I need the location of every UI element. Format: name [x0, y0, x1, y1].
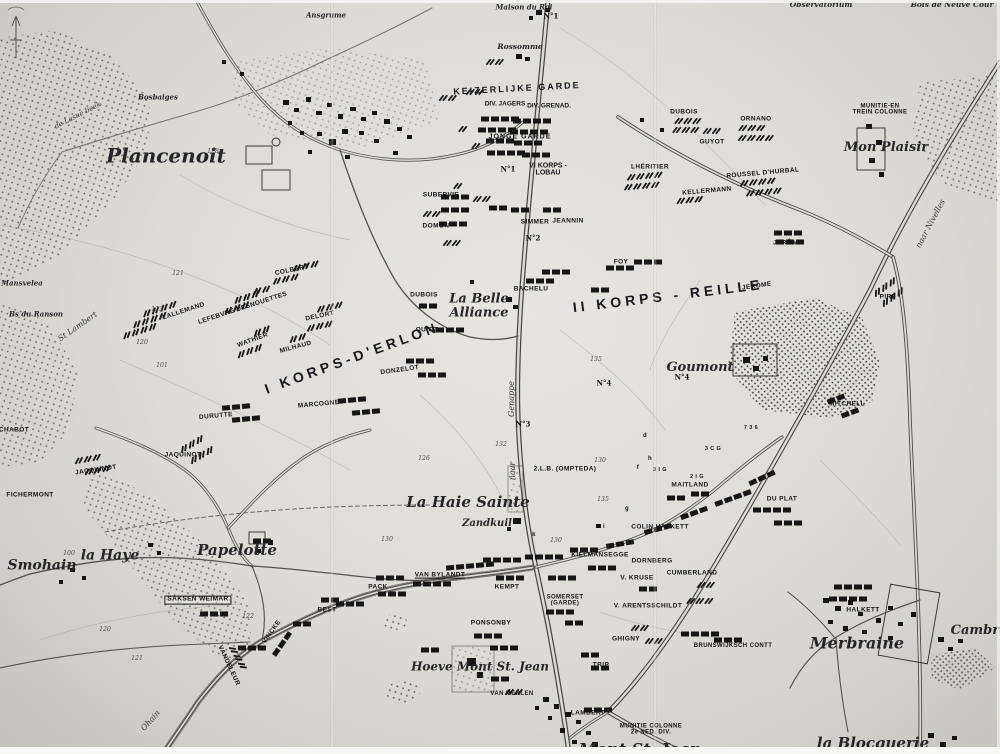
cavalry-unit-marker [132, 311, 169, 329]
map-drawing [0, 0, 1000, 754]
infantry-unit-marker [406, 359, 434, 364]
cavalry-unit-marker [122, 322, 159, 340]
infantry-unit-marker [490, 646, 518, 651]
cavalry-unit-marker [466, 89, 484, 96]
infantry-unit-marker [591, 666, 609, 671]
infantry-unit-marker [253, 539, 271, 544]
waterloo-map-photo: PlancenoitLa Belle AllianceLa Haie Saint… [0, 0, 1000, 754]
infantry-unit-marker [691, 492, 709, 497]
infantry-unit-marker [543, 208, 561, 213]
cavalry-unit-marker [626, 171, 663, 181]
cavalry-unit-marker [703, 128, 721, 135]
cavalry-unit-marker [292, 260, 320, 272]
cavalry-unit-marker [223, 301, 251, 316]
infantry-unit-marker [591, 288, 609, 293]
infantry-unit-marker [474, 634, 502, 639]
cavalry-unit-marker [252, 325, 271, 337]
infantry-unit-marker [446, 561, 494, 570]
cavalry-unit-marker [288, 332, 307, 343]
infantry-unit-marker [200, 612, 228, 617]
cavalry-unit-marker [676, 196, 704, 205]
infantry-unit-marker [421, 648, 439, 653]
cavalry-unit-marker [233, 290, 261, 305]
infantry-unit-marker [714, 489, 751, 507]
cavalry-unit-marker [236, 343, 264, 359]
infantry-unit-marker [439, 222, 467, 227]
infantry-unit-marker [222, 403, 250, 410]
infantry-unit-marker [606, 266, 634, 271]
cavalry-unit-marker [473, 196, 491, 203]
cavalry-unit-marker [142, 300, 179, 318]
cavalry-unit-marker [453, 183, 462, 190]
infantry-unit-marker [419, 304, 437, 309]
infantry-unit-marker [774, 521, 802, 526]
cavalry-unit-marker [505, 689, 523, 696]
cavalry-unit-marker [458, 126, 467, 133]
infantry-unit-marker [588, 566, 616, 571]
infantry-unit-marker [774, 231, 802, 236]
infantry-unit-marker [376, 576, 404, 581]
cavalry-unit-marker [486, 59, 504, 66]
infantry-unit-marker [714, 638, 742, 643]
infantry-unit-marker [753, 508, 791, 513]
infantry-unit-marker [338, 396, 366, 403]
infantry-unit-marker [496, 576, 524, 581]
infantry-unit-marker [644, 523, 672, 535]
infantry-unit-marker [634, 260, 662, 265]
photo-edge-top [0, 0, 1000, 3]
infantry-unit-marker [436, 328, 464, 333]
cavalry-unit-marker [738, 135, 774, 142]
infantry-unit-marker [513, 119, 551, 124]
infantry-unit-marker [548, 576, 576, 581]
cavalry-unit-marker [178, 434, 205, 453]
infantry-unit-marker [489, 206, 507, 211]
infantry-unit-marker [483, 558, 521, 563]
photo-fold-line [653, 0, 657, 754]
infantry-unit-marker [441, 195, 469, 200]
cavalry-unit-marker [672, 127, 699, 134]
photo-fold-line [330, 0, 334, 754]
infantry-unit-marker [526, 279, 554, 284]
infantry-unit-marker [491, 677, 509, 682]
infantry-unit-marker [834, 585, 872, 590]
cavalry-unit-marker [188, 445, 215, 464]
infantry-unit-marker [510, 130, 548, 135]
mont-st-jean-farm-enclosure [452, 646, 494, 692]
infantry-unit-marker [542, 270, 570, 275]
infantry-unit-marker [511, 208, 529, 213]
infantry-unit-marker [418, 373, 446, 378]
cavalry-unit-marker [439, 95, 457, 102]
infantry-unit-marker [584, 708, 612, 713]
infantry-unit-marker [667, 496, 685, 501]
infantry-unit-marker [487, 151, 525, 156]
photo-edge-bottom [0, 747, 1000, 754]
cavalry-unit-marker [443, 240, 461, 247]
infantry-unit-marker [570, 548, 598, 553]
infantry-unit-marker [378, 592, 406, 597]
infantry-unit-marker [486, 139, 514, 144]
cavalry-unit-marker [423, 211, 441, 218]
cavalry-unit-marker [674, 118, 701, 125]
infantry-unit-marker [514, 141, 542, 146]
cavalry-unit-marker [738, 125, 765, 132]
infantry-unit-marker [581, 653, 599, 658]
infantry-unit-marker [525, 555, 563, 560]
infantry-unit-marker [776, 240, 804, 245]
infantry-unit-marker [441, 208, 469, 213]
infantry-unit-marker [352, 408, 380, 415]
cavalry-unit-marker [272, 273, 300, 285]
la-haie-sainte-orchard [508, 466, 523, 512]
infantry-unit-marker [238, 646, 266, 651]
infantry-unit-marker [565, 621, 583, 626]
infantry-unit-marker [606, 539, 634, 549]
cavalry-unit-marker [74, 453, 102, 464]
infantry-unit-marker [522, 153, 550, 158]
cavalry-unit-marker [739, 177, 776, 187]
infantry-unit-marker [546, 610, 574, 615]
infantry-unit-marker [336, 602, 364, 607]
